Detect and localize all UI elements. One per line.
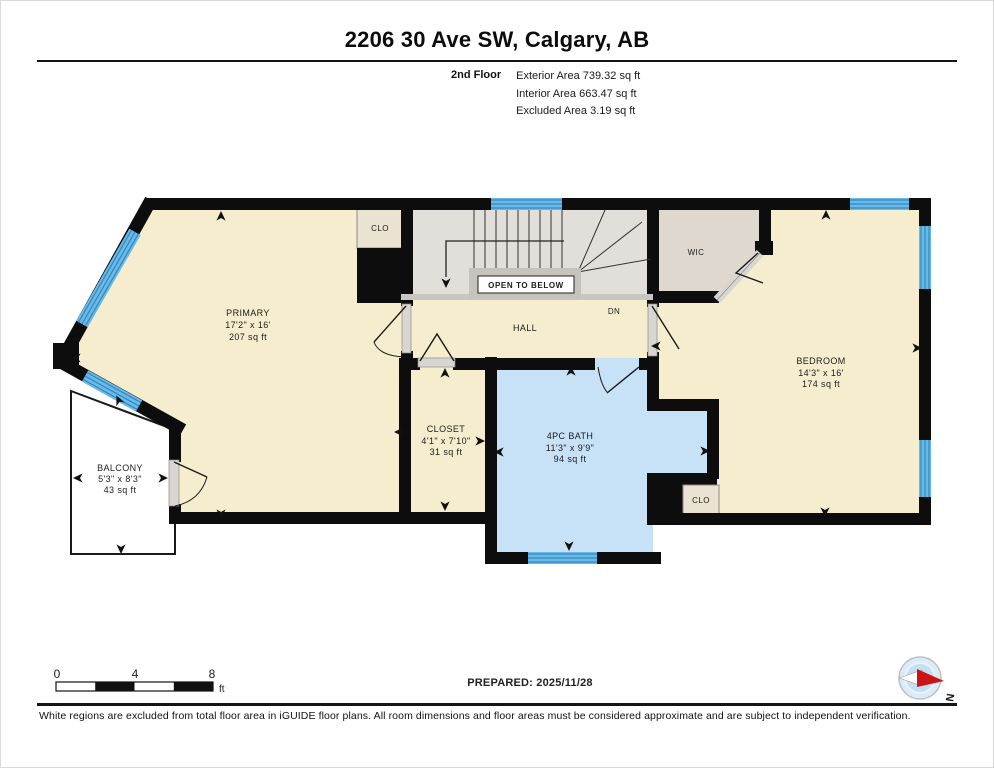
disclaimer-text: White regions are excluded from total fl… [39,710,973,722]
open-to-below-label: OPEN TO BELOW [488,281,564,290]
floorplan-page: 2206 30 Ave SW, Calgary, AB 2nd Floor Ex… [0,0,994,768]
svg-text:BALCONY: BALCONY [97,463,143,473]
prepared-date: PREPARED: 2025/11/28 [1,677,993,689]
clo-bath-label: CLO [692,496,710,505]
dn-label: DN [608,307,620,316]
svg-text:11'3" x 9'9": 11'3" x 9'9" [546,443,595,453]
svg-text:14'3" x 16': 14'3" x 16' [798,368,844,378]
primary-label: PRIMARY 17'2" x 16' 207 sq ft [225,308,271,342]
wall-corner-cap-left [53,343,79,369]
svg-text:31 sq ft: 31 sq ft [430,447,463,457]
svg-text:17'2" x 16': 17'2" x 16' [225,320,271,330]
svg-text:4PC BATH: 4PC BATH [547,431,594,441]
svg-text:207 sq ft: 207 sq ft [229,332,267,342]
svg-text:94 sq ft: 94 sq ft [554,454,587,464]
compass-north-label: N [943,692,956,702]
floor-plan-svg: OPEN TO BELOW [1,1,994,768]
clo-top-label: CLO [371,224,389,233]
hall-label: HALL [513,323,537,333]
svg-text:5'3" x 8'3": 5'3" x 8'3" [98,474,142,484]
svg-text:174 sq ft: 174 sq ft [802,379,840,389]
bedroom-label: BEDROOM 14'3" x 16' 174 sq ft [796,356,845,389]
svg-text:BEDROOM: BEDROOM [796,356,845,366]
svg-text:CLOSET: CLOSET [427,424,466,434]
footer-divider [37,703,957,706]
svg-text:4'1" x 7'10": 4'1" x 7'10" [421,436,470,446]
svg-text:43 sq ft: 43 sq ft [104,485,137,495]
wic-label: WIC [688,248,705,257]
balcony-label: BALCONY 5'3" x 8'3" 43 sq ft [97,463,143,495]
svg-text:PRIMARY: PRIMARY [226,308,270,318]
